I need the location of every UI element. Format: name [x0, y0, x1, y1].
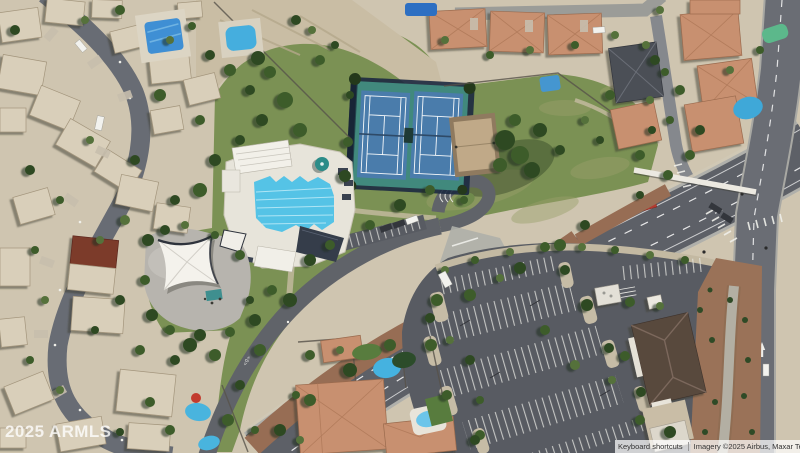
tennis-court-left	[357, 90, 410, 179]
attribution-divider	[688, 442, 689, 451]
attribution-bar: Keyboard shortcuts Imagery ©2025 Airbus,…	[615, 440, 800, 453]
map-viewport: <O> <O>	[0, 0, 800, 453]
armls-watermark: 2025 ARMLS	[5, 422, 111, 442]
volleyball-court	[449, 113, 501, 177]
satellite-imagery[interactable]: <O> <O>	[0, 0, 800, 453]
imagery-attribution: Imagery ©2025 Airbus, Maxar Technologies	[694, 442, 800, 451]
desert-landscaping	[690, 258, 762, 453]
keyboard-shortcuts-button[interactable]: Keyboard shortcuts	[618, 442, 683, 451]
